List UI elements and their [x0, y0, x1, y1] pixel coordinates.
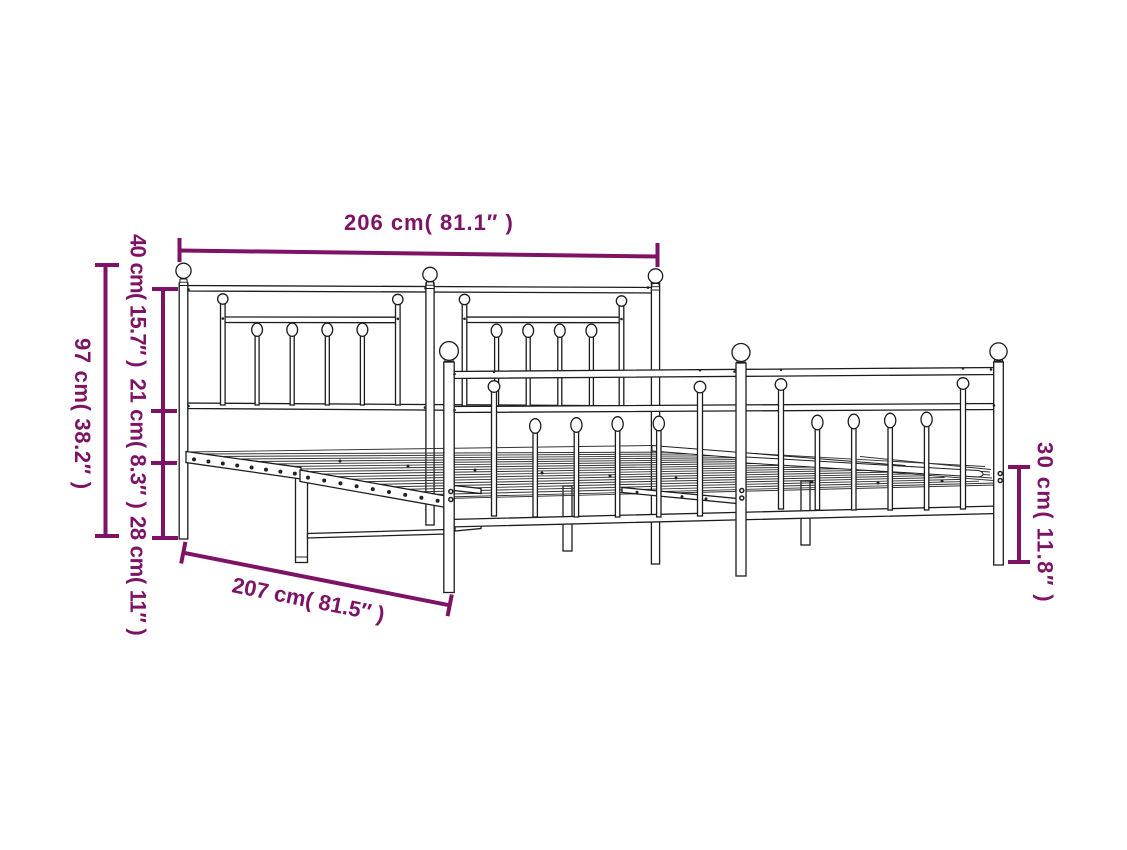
- svg-text:206 cm( 81.1″ ): 206 cm( 81.1″ ): [344, 210, 514, 235]
- svg-text:30 cm( 11.8″ ): 30 cm( 11.8″ ): [1033, 442, 1058, 603]
- svg-text:97 cm( 38.2″ ): 97 cm( 38.2″ ): [70, 338, 95, 490]
- svg-text:28 cm( 11″ ): 28 cm( 11″ ): [126, 516, 151, 635]
- svg-text:40 cm( 15.7″ ): 40 cm( 15.7″ ): [126, 234, 151, 367]
- svg-text:21 cm( 8.3″ ): 21 cm( 8.3″ ): [126, 379, 151, 509]
